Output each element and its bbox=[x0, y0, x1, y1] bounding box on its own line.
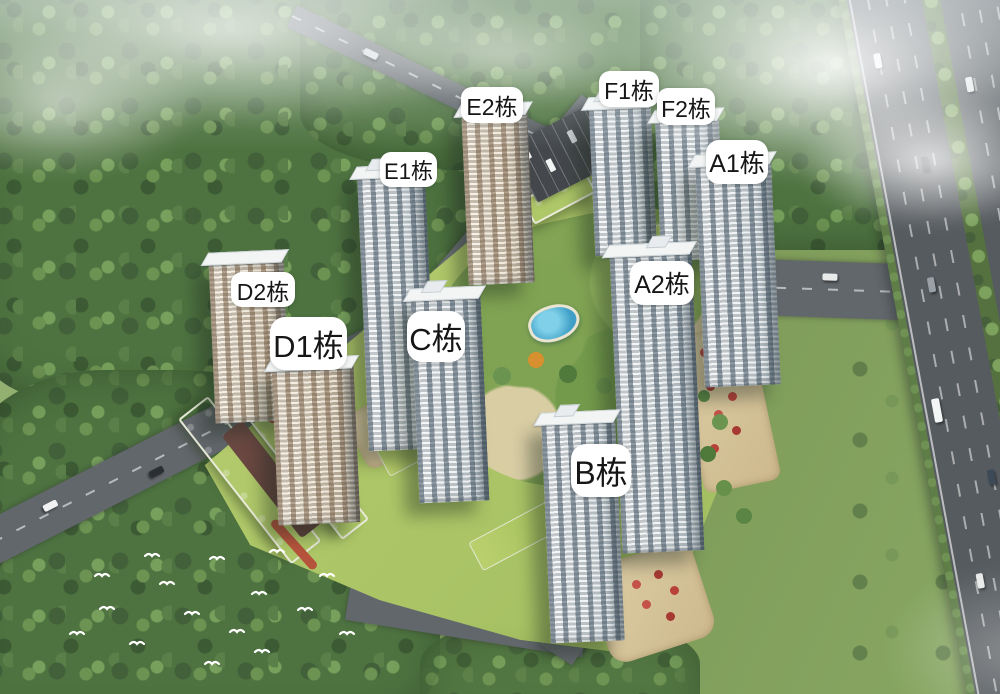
tower-roof bbox=[403, 285, 486, 302]
building-label-b[interactable]: B栋 bbox=[571, 444, 631, 497]
tower-roof bbox=[201, 249, 289, 266]
building-label-text: B栋 bbox=[574, 448, 627, 494]
building-label-text: D2栋 bbox=[237, 273, 289, 307]
car bbox=[822, 273, 837, 281]
building-label-d2[interactable]: D2栋 bbox=[231, 272, 295, 307]
tower-d1 bbox=[272, 364, 361, 525]
building-label-text: A1栋 bbox=[709, 144, 765, 180]
building-label-f2[interactable]: F2栋 bbox=[657, 88, 715, 125]
tower-a1 bbox=[695, 160, 781, 387]
building-label-text: C栋 bbox=[409, 314, 462, 359]
building-label-text: D1栋 bbox=[273, 321, 344, 366]
building-label-a2[interactable]: A2栋 bbox=[630, 261, 694, 305]
building-label-e2[interactable]: E2栋 bbox=[461, 87, 523, 123]
building-label-e1[interactable]: E1栋 bbox=[380, 152, 437, 187]
plaza-palms bbox=[698, 390, 710, 402]
building-label-text: A2栋 bbox=[634, 265, 690, 301]
building-label-d1[interactable]: D1栋 bbox=[270, 317, 347, 370]
building-label-f1[interactable]: F1栋 bbox=[599, 71, 659, 107]
building-label-text: E2栋 bbox=[466, 88, 517, 122]
building-label-text: F1栋 bbox=[604, 72, 654, 106]
building-label-c[interactable]: C栋 bbox=[407, 311, 465, 362]
building-label-a1[interactable]: A1栋 bbox=[706, 140, 768, 184]
birds-flock bbox=[30, 510, 390, 680]
aerial-render: E2栋 F1栋 F2栋 A1栋 E1栋 D2栋 A2栋 D1栋 C栋 B栋 bbox=[0, 0, 1000, 694]
tower-roof bbox=[533, 409, 620, 426]
building-label-text: E1栋 bbox=[384, 154, 433, 186]
van bbox=[545, 158, 556, 172]
building-label-text: F2栋 bbox=[661, 90, 711, 124]
